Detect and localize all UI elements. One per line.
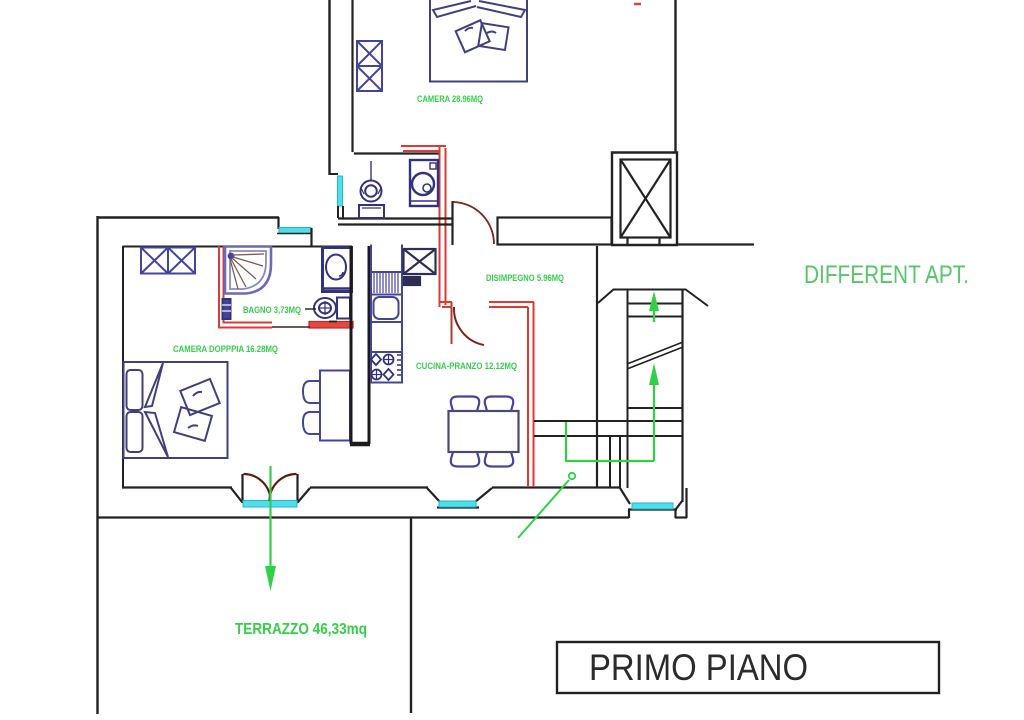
- svg-text:CUCINA-PRANZO 12.12MQ: CUCINA-PRANZO 12.12MQ: [416, 361, 517, 372]
- svg-text:PRIMO PIANO: PRIMO PIANO: [589, 647, 808, 688]
- svg-text:BAGNO 3,73MQ: BAGNO 3,73MQ: [243, 305, 301, 315]
- svg-text:CAMERA DOPPPIA 16.28MQ: CAMERA DOPPPIA 16.28MQ: [173, 344, 278, 355]
- svg-text:DIFFERENT APT.: DIFFERENT APT.: [804, 261, 969, 289]
- svg-text:DISIMPEGNO 5.96MQ: DISIMPEGNO 5.96MQ: [486, 273, 564, 283]
- svg-text:CAMERA 28.96MQ: CAMERA 28.96MQ: [417, 94, 483, 105]
- svg-text:TERRAZZO 46,33mq: TERRAZZO 46,33mq: [235, 621, 367, 638]
